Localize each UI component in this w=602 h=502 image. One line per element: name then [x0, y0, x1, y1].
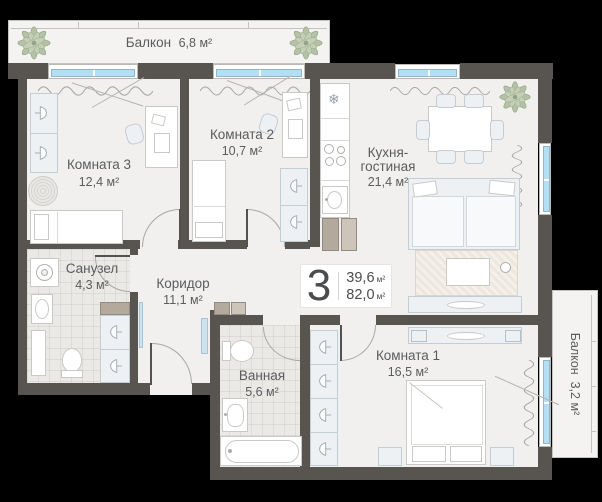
washing-machine [30, 258, 59, 287]
blanket-edge [194, 206, 225, 207]
door-leaf-room2 [246, 209, 248, 247]
dining-chair [436, 94, 456, 108]
washer-door [41, 269, 48, 276]
faucet [228, 449, 232, 453]
balcony-right: Балкон 3,2 м² [552, 290, 598, 458]
wardrobe-top-cabinet [100, 302, 130, 315]
window-glass [543, 360, 550, 444]
wc-label: Санузел [66, 262, 119, 277]
window-kitchen-top [395, 64, 460, 79]
window-glass [51, 69, 135, 77]
unit-number: 3 [307, 266, 331, 306]
hanger-icon [314, 407, 332, 423]
hanger-icon [285, 214, 303, 230]
wc-sink [31, 294, 53, 324]
sofa-cushion [412, 196, 464, 247]
wall [130, 292, 138, 383]
stove-burner [336, 156, 346, 166]
balcony-right-name: Балкон [568, 333, 582, 375]
stove-burner [324, 144, 334, 154]
living-area-value: 39,6 [346, 270, 374, 286]
bed-room2 [192, 160, 226, 242]
sofa-cushion [466, 196, 516, 247]
dining-chair [464, 150, 484, 164]
wall [305, 63, 395, 79]
hanger-icon [314, 441, 332, 457]
railing-tick [591, 386, 596, 387]
room1-label: Комната 1 [376, 349, 440, 364]
window-room2 [213, 64, 305, 79]
double-bed [406, 380, 486, 465]
floor-entrance-gap [150, 383, 192, 395]
wall [218, 315, 263, 325]
tv-stand-drawer [505, 330, 521, 342]
wardrobe-divider [281, 205, 307, 206]
balcony-right-label: Балкон 3,2 м² [568, 333, 582, 415]
tv-stand-kitchen [408, 296, 522, 313]
curtain [522, 360, 536, 446]
blanket [411, 385, 483, 445]
wall [300, 315, 340, 325]
kitchen-cabinet [341, 218, 357, 251]
toilet-bowl [230, 340, 254, 362]
wall [538, 447, 552, 480]
kitchen-sink [322, 186, 348, 214]
wardrobe-divider [311, 432, 337, 433]
room2-label: Комната 2 [210, 128, 274, 143]
tv-stand-room1 [408, 327, 522, 344]
corridor-label: Коридор [156, 277, 209, 292]
door-leaf-room1 [340, 325, 342, 361]
balcony-top-area: 6,8 м² [179, 36, 213, 50]
bathtub-inner [225, 440, 299, 463]
sink-basin [35, 299, 49, 319]
bed-room3 [30, 210, 123, 244]
floor-lamp [500, 262, 511, 273]
dining-table [428, 106, 492, 152]
counter-divider [321, 118, 349, 119]
desk-item [154, 133, 170, 153]
hanger-icon [105, 324, 123, 340]
pillow [34, 214, 49, 240]
railing-tick [138, 22, 139, 29]
hall-mirror [201, 318, 208, 354]
desk-item [151, 114, 166, 127]
wardrobe-divider [311, 364, 337, 365]
desk-room2 [282, 92, 308, 158]
area-unit: м² [377, 291, 386, 301]
balcony-railing [591, 295, 592, 453]
badge-divider [338, 272, 339, 300]
desk-room3 [145, 106, 178, 168]
toilet-bowl [62, 348, 82, 372]
railing-tick [78, 22, 79, 29]
wc-cabinet [31, 330, 46, 376]
counter-divider [321, 140, 349, 141]
stove-burner [337, 146, 345, 154]
balcony-right-area: 3,2 м² [568, 382, 582, 416]
hanger-icon [34, 105, 52, 121]
wall [210, 467, 330, 480]
window-room3 [48, 64, 138, 79]
room2-area: 10,7 м² [222, 145, 263, 159]
sofa-pillow [488, 180, 515, 197]
plant-icon [497, 79, 533, 115]
wall [376, 315, 538, 325]
kitchen-area: 21,4 м² [368, 176, 409, 190]
balcony-railing [11, 28, 327, 29]
hanger-icon [34, 145, 52, 161]
wall [310, 79, 320, 247]
faucet [224, 413, 227, 416]
hall-cabinet [214, 302, 230, 315]
wardrobe-divider [31, 133, 57, 134]
total-area-value: 82,0 [346, 287, 374, 303]
bathtub [220, 436, 302, 466]
dining-chair [464, 94, 484, 108]
room3-area: 12,4 м² [79, 176, 120, 190]
balcony-top-name: Балкон [126, 35, 171, 50]
kitchen-cabinet [322, 218, 339, 251]
pillow [450, 446, 482, 462]
dining-chair [490, 120, 504, 140]
hanger-icon [105, 358, 123, 374]
fridge-icon: ❄ [328, 92, 340, 106]
kitchen-label-line2: гостиная [361, 160, 416, 175]
sink-basin [327, 191, 342, 209]
pillow [412, 446, 446, 462]
nightstand [378, 447, 402, 466]
railing-tick [591, 431, 596, 432]
wall [210, 310, 220, 480]
window-kitchen-right [539, 143, 551, 215]
tv-icon [447, 332, 485, 340]
area-unit: м² [377, 274, 386, 284]
sofa [408, 178, 520, 250]
door-leaf-room3 [179, 209, 181, 247]
room3-label: Комната 3 [67, 158, 131, 173]
hanger-icon [314, 339, 332, 355]
wall [130, 249, 138, 255]
wall [538, 63, 552, 143]
bathroom-label: Ванная [239, 369, 285, 384]
bath-sink [222, 398, 248, 432]
corridor-mirror [139, 302, 143, 348]
wall [330, 467, 552, 480]
hall-cabinet [231, 302, 246, 315]
wall [180, 79, 189, 247]
counter-divider [321, 180, 349, 181]
corridor-area: 11,1 м² [163, 294, 203, 308]
balcony-top-label: Балкон 6,8 м² [9, 35, 329, 50]
floor-plan: Балкон 6,8 м² Балкон 3,2 м² [0, 0, 602, 502]
hanger-icon [314, 373, 332, 389]
wall [18, 79, 27, 395]
desk-item [288, 119, 303, 139]
unit-badge: 3 39,6м² 82,0м² [300, 264, 392, 308]
pillow [195, 222, 223, 238]
toilet-tank [61, 370, 83, 378]
bathroom-area: 5,6 м² [245, 386, 279, 400]
tv-icon [447, 301, 485, 309]
blanket-edge [57, 212, 58, 243]
dining-chair [436, 150, 456, 164]
window-glass [543, 146, 550, 212]
desk-item [286, 98, 302, 112]
faucet [325, 198, 328, 201]
coffee-table [446, 258, 490, 286]
balcony-top: Балкон 6,8 м² [8, 20, 330, 64]
sink-basin [227, 404, 244, 427]
hanger-icon [285, 178, 303, 194]
dining-chair [416, 120, 430, 140]
railing-tick [591, 341, 596, 342]
balcony-door-room1 [539, 357, 551, 447]
wardrobe-divider [101, 349, 129, 350]
wall [138, 63, 213, 79]
wall [8, 63, 48, 79]
nightstand [490, 447, 514, 466]
round-rug [28, 176, 58, 206]
wall [27, 383, 150, 395]
wardrobe-divider [311, 398, 337, 399]
railing-tick [248, 22, 249, 29]
wc-area: 4,3 м² [75, 279, 109, 293]
wall [538, 215, 552, 357]
window-glass [398, 69, 457, 77]
room1-area: 16,5 м² [388, 366, 429, 380]
tv-stand-drawer [411, 330, 427, 342]
stove-burner [325, 157, 334, 166]
